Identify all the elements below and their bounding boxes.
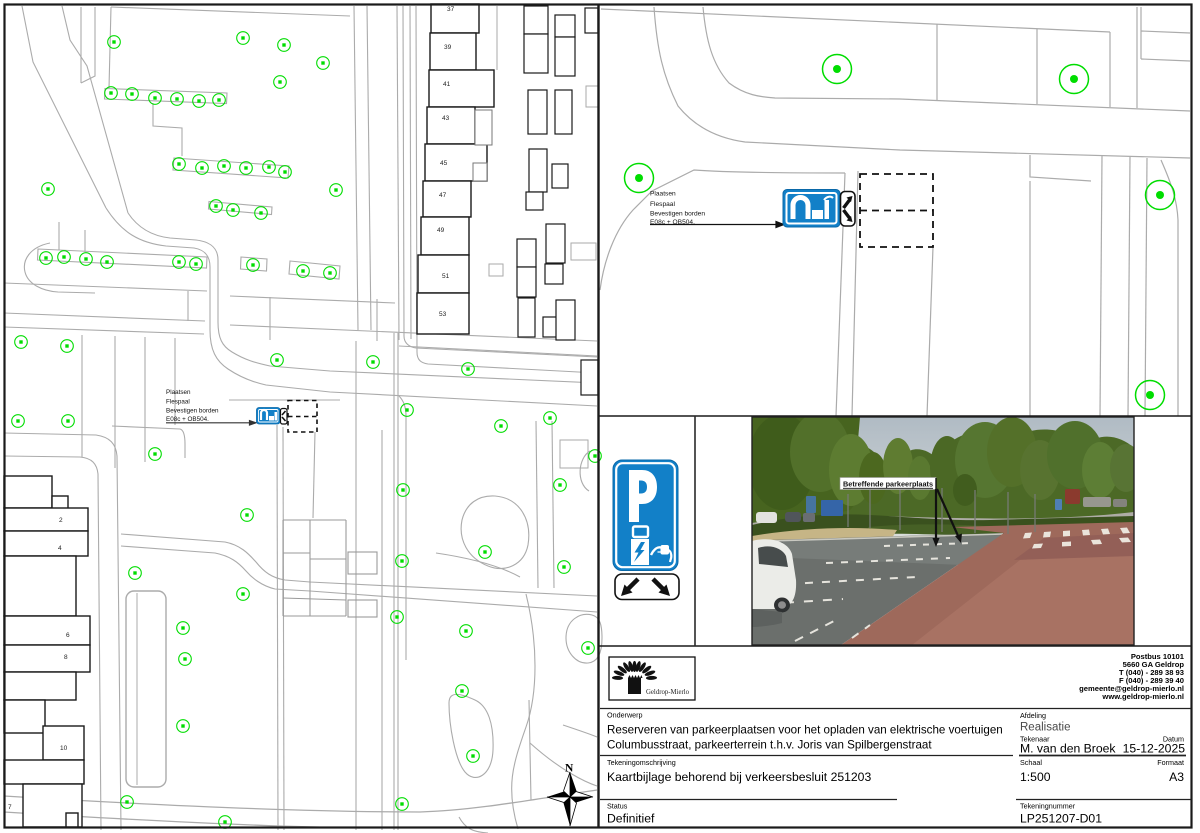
svg-text:Bevestigen borden: Bevestigen borden bbox=[166, 408, 219, 415]
svg-text:M. van den Broek: M. van den Broek bbox=[1020, 742, 1116, 756]
svg-text:43: 43 bbox=[442, 115, 450, 122]
svg-text:7: 7 bbox=[8, 804, 12, 811]
svg-text:Betreffende parkeerplaats: Betreffende parkeerplaats bbox=[843, 480, 933, 489]
svg-text:Geldrop-Mierlo: Geldrop-Mierlo bbox=[646, 689, 690, 696]
svg-text:51: 51 bbox=[442, 273, 450, 280]
svg-text:2: 2 bbox=[59, 517, 63, 524]
svg-text:N: N bbox=[565, 763, 574, 775]
svg-text:39: 39 bbox=[444, 44, 452, 51]
svg-text:A3: A3 bbox=[1169, 770, 1184, 784]
svg-text:Onderwerp: Onderwerp bbox=[607, 711, 643, 720]
svg-text:Flespaal: Flespaal bbox=[166, 399, 190, 406]
svg-text:41: 41 bbox=[443, 81, 451, 88]
svg-text:Plaatsen: Plaatsen bbox=[166, 389, 191, 396]
svg-text:Flespaal: Flespaal bbox=[650, 201, 675, 208]
svg-text:Definitief: Definitief bbox=[607, 812, 655, 826]
svg-text:Plaatsen: Plaatsen bbox=[650, 191, 676, 198]
svg-text:www.geldrop-mierlo.nl: www.geldrop-mierlo.nl bbox=[1101, 692, 1184, 701]
svg-text:4: 4 bbox=[58, 545, 62, 552]
svg-text:1:500: 1:500 bbox=[1020, 770, 1051, 784]
svg-text:53: 53 bbox=[439, 311, 447, 318]
svg-text:45: 45 bbox=[440, 160, 448, 167]
svg-text:Status: Status bbox=[607, 802, 628, 811]
svg-text:Reserveren van parkeerplaatsen: Reserveren van parkeerplaatsen voor het … bbox=[607, 724, 1003, 737]
svg-text:Realisatie: Realisatie bbox=[1020, 722, 1071, 734]
svg-text:47: 47 bbox=[439, 192, 447, 199]
svg-text:Bevestigen borden: Bevestigen borden bbox=[650, 211, 705, 218]
svg-text:Tekeningomschrijving: Tekeningomschrijving bbox=[607, 758, 676, 767]
svg-text:Afdeling: Afdeling bbox=[1020, 711, 1046, 720]
svg-text:49: 49 bbox=[437, 227, 445, 234]
svg-text:LP251207-D01: LP251207-D01 bbox=[1020, 812, 1102, 826]
svg-text:Schaal: Schaal bbox=[1020, 758, 1042, 767]
svg-text:37: 37 bbox=[447, 6, 455, 13]
svg-text:E08c + OB504.: E08c + OB504. bbox=[166, 416, 209, 423]
svg-text:Formaat: Formaat bbox=[1157, 758, 1184, 767]
svg-text:Columbusstraat, parkeerterrein: Columbusstraat, parkeerterrein t.h.v. Jo… bbox=[607, 739, 932, 752]
svg-text:10: 10 bbox=[60, 745, 68, 752]
svg-text:15-12-2025: 15-12-2025 bbox=[1123, 742, 1186, 756]
svg-text:6: 6 bbox=[66, 632, 70, 639]
svg-text:Tekeningnummer: Tekeningnummer bbox=[1020, 802, 1076, 811]
svg-text:8: 8 bbox=[64, 654, 68, 661]
svg-text:Kaartbijlage behorend bij verk: Kaartbijlage behorend bij verkeersbeslui… bbox=[607, 770, 871, 784]
